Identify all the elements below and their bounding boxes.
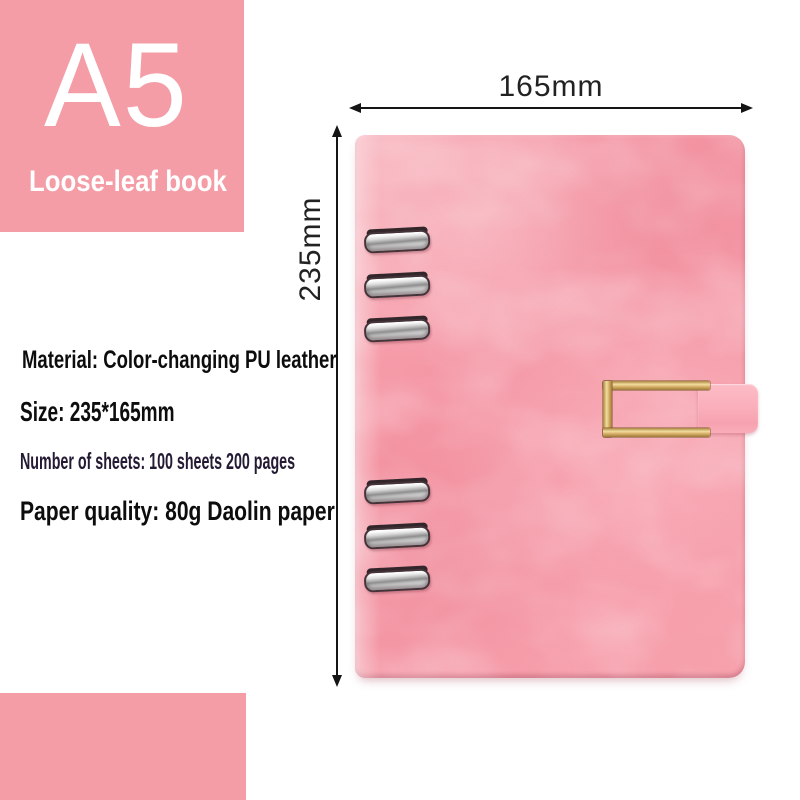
buckle-bar-top (603, 381, 710, 390)
width-dimension-line (356, 107, 746, 109)
size-badge-title: A5 (44, 22, 189, 148)
binder-ring (363, 477, 430, 502)
product-image: A5 Loose-leaf book 165mm 235mm Material:… (0, 0, 800, 800)
binder-ring (363, 226, 430, 251)
height-dimension-label: 235mm (294, 189, 326, 309)
height-dimension-line (336, 130, 338, 678)
arrow-up-icon (332, 125, 342, 137)
ring-loop (364, 274, 431, 298)
ring-loop (364, 480, 431, 504)
spec-paper-quality: Paper quality: 80g Daolin paper (20, 497, 335, 527)
spec-sheet-count: Number of sheets: 100 sheets 200 pages (20, 449, 295, 474)
spec-size: Size: 235*165mm (20, 397, 175, 428)
arrow-down-icon (332, 675, 342, 687)
arrow-right-icon (741, 103, 753, 113)
arrow-left-icon (349, 103, 361, 113)
binder-ring (363, 522, 430, 547)
spec-material: Material: Color-changing PU leather (22, 347, 337, 375)
binder-ring (363, 565, 430, 590)
color-swatch-badge: Pink (0, 693, 246, 800)
ring-loop (364, 229, 431, 253)
ring-loop (364, 525, 431, 549)
binder-ring (363, 271, 430, 296)
clasp-buckle-frame (603, 381, 710, 437)
buckle-bar-bottom (603, 428, 710, 437)
width-dimension-label: 165mm (491, 70, 611, 104)
size-badge-subtitle: Loose-leaf book (29, 165, 227, 199)
ring-loop (364, 568, 431, 592)
binder-ring (363, 315, 430, 340)
size-badge: A5 Loose-leaf book (0, 0, 244, 232)
ring-loop (364, 318, 431, 342)
